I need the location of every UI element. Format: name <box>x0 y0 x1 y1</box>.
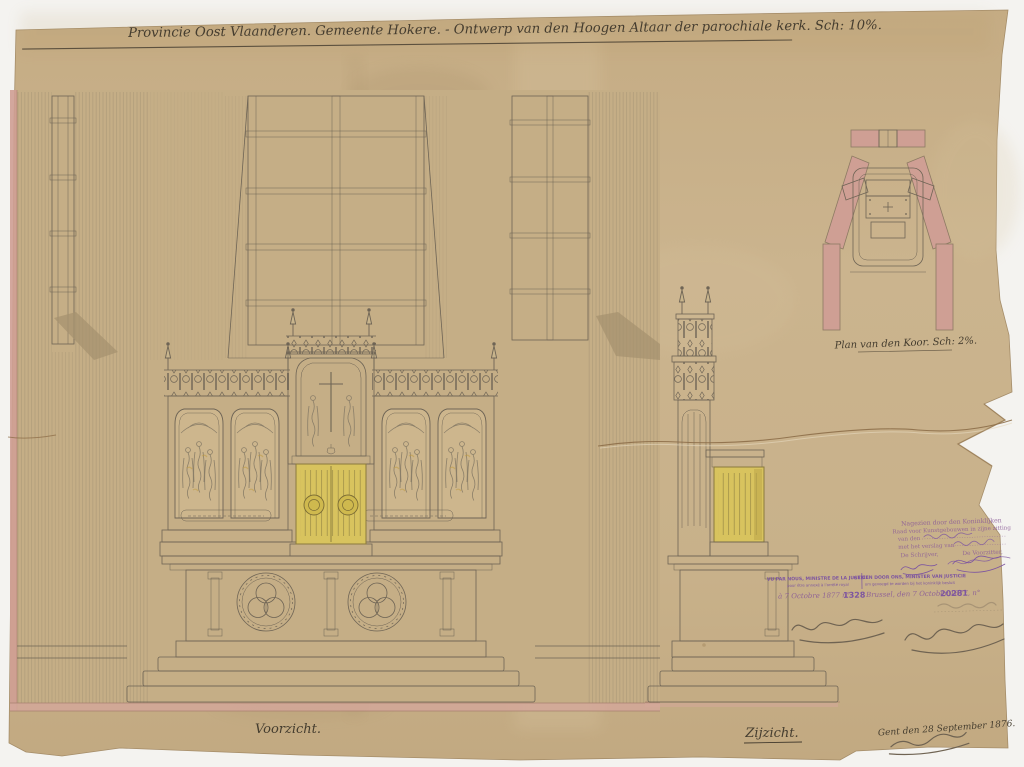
side-view-label: Zijzicht. <box>744 726 798 741</box>
tabernacle-medallion <box>338 495 358 515</box>
note-fr-number: 1328 <box>843 590 866 599</box>
tabernacle-front <box>290 464 372 556</box>
note-nl-number: 20281 <box>940 589 968 598</box>
relief-panel <box>231 409 279 518</box>
wall-section-cut <box>10 90 17 711</box>
relief-panel <box>382 409 430 518</box>
stamp-line: van den <box>897 536 921 543</box>
front-view-label: Voorzicht. <box>255 722 321 737</box>
tabernacle-medallion <box>304 495 324 515</box>
relief-panel <box>175 409 223 518</box>
wall-pier <box>588 92 660 703</box>
scanned-drawing-page: Provincie Oost Vlaanderen. Gemeente Hoke… <box>0 0 1024 767</box>
relief-panel <box>438 409 486 518</box>
note-fr-date: à 7 Octobre 1877 n° <box>778 591 850 600</box>
side-view-label-group: Zijzicht. <box>744 726 802 743</box>
altar-design-drawing: Provincie Oost Vlaanderen. Gemeente Hoke… <box>0 0 1024 767</box>
floor-band <box>10 703 660 711</box>
wall-pier <box>74 92 150 703</box>
wall-pilaster <box>150 92 225 360</box>
floor-band-side <box>645 703 838 707</box>
wall-pier <box>17 92 52 703</box>
